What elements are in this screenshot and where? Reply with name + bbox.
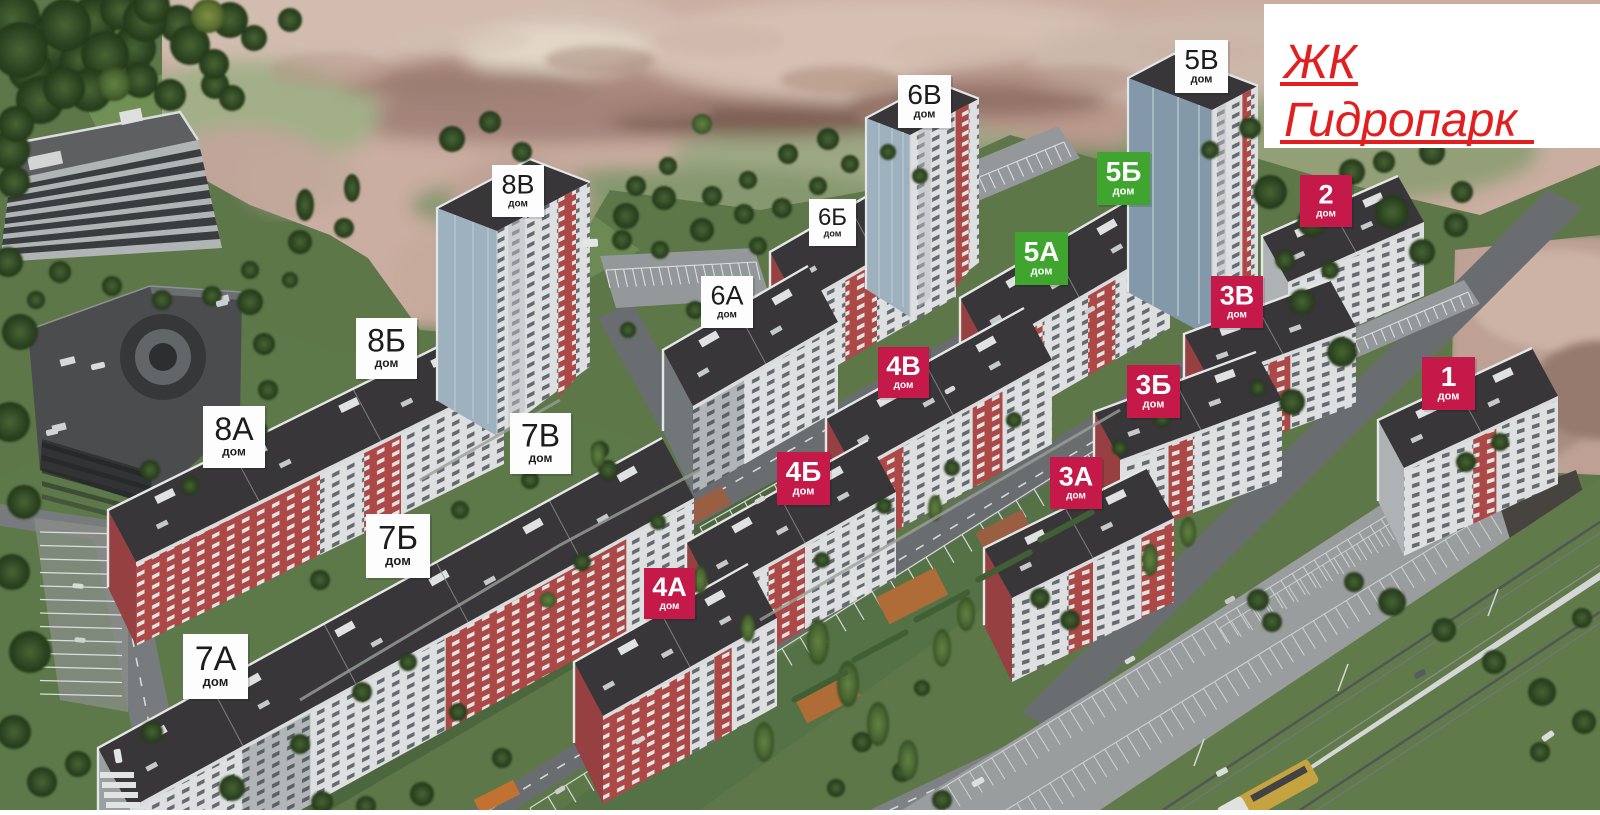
svg-text:7А: 7А	[195, 640, 237, 678]
svg-text:дом: дом	[529, 451, 553, 465]
svg-text:Гидропарк: Гидропарк	[1284, 94, 1519, 147]
svg-text:2: 2	[1318, 180, 1333, 210]
svg-text:дом: дом	[1227, 310, 1247, 321]
svg-text:4А: 4А	[652, 572, 687, 602]
svg-text:дом: дом	[894, 380, 914, 391]
svg-text:дом: дом	[1113, 185, 1135, 197]
svg-text:дом: дом	[1191, 73, 1213, 85]
svg-text:3Б: 3Б	[1136, 369, 1172, 400]
svg-text:7В: 7В	[521, 418, 560, 454]
svg-text:4Б: 4Б	[786, 456, 822, 487]
svg-text:4В: 4В	[886, 351, 921, 381]
svg-text:6Б: 6Б	[818, 204, 847, 231]
svg-text:дом: дом	[914, 108, 936, 120]
svg-text:дом: дом	[1031, 265, 1053, 277]
svg-text:8А: 8А	[214, 411, 254, 447]
svg-text:дом: дом	[375, 356, 399, 370]
svg-text:дом: дом	[717, 310, 737, 321]
svg-text:дом: дом	[793, 485, 815, 497]
svg-text:дом: дом	[1316, 209, 1336, 220]
svg-text:5А: 5А	[1024, 236, 1060, 267]
svg-text:дом: дом	[508, 199, 528, 210]
svg-text:дом: дом	[203, 674, 229, 689]
svg-text:3А: 3А	[1059, 462, 1094, 492]
svg-text:дом: дом	[660, 601, 680, 612]
svg-text:5В: 5В	[1184, 44, 1218, 75]
svg-text:8В: 8В	[501, 170, 534, 200]
svg-text:дом: дом	[222, 445, 246, 459]
svg-text:ЖК: ЖК	[1282, 36, 1359, 89]
svg-text:дом: дом	[1143, 398, 1165, 410]
svg-text:дом: дом	[1438, 390, 1460, 402]
svg-text:7Б: 7Б	[378, 519, 418, 556]
svg-text:дом: дом	[385, 553, 411, 568]
svg-text:8Б: 8Б	[367, 323, 406, 359]
svg-text:5Б: 5Б	[1106, 156, 1142, 187]
svg-text:6В: 6В	[907, 79, 941, 110]
svg-text:1: 1	[1441, 361, 1457, 392]
svg-text:6А: 6А	[710, 281, 743, 311]
svg-text:3В: 3В	[1220, 281, 1255, 311]
svg-text:дом: дом	[1066, 491, 1086, 502]
svg-text:дом: дом	[824, 229, 842, 239]
